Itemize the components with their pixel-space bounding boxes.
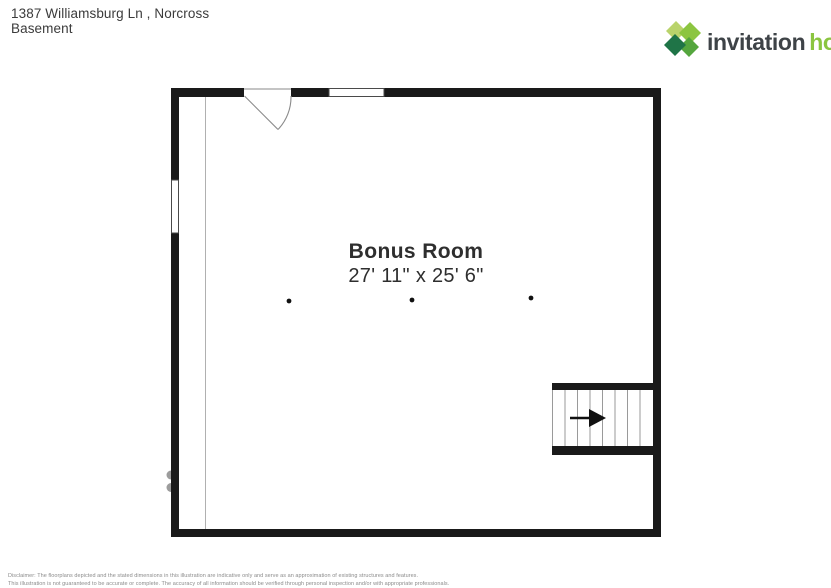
wall-left: [171, 88, 179, 537]
exterior-walls: [171, 88, 661, 537]
room-dimensions: 27' 11" x 25' 6": [171, 265, 661, 288]
door-leaf: [245, 96, 279, 130]
fixture-dot: [529, 296, 534, 301]
door-swing-arc: [278, 96, 291, 130]
staircase: [552, 383, 653, 455]
stairs-direction-right-arrow-icon: [570, 409, 606, 427]
disclaimer-line-1: Disclaimer: The floorplans depicted and …: [8, 572, 568, 580]
room-label: Bonus Room 27' 11" x 25' 6": [171, 240, 661, 288]
stair-wall-bottom: [552, 446, 653, 455]
room-name: Bonus Room: [171, 240, 661, 264]
window-left: [172, 180, 179, 233]
window-top: [329, 89, 384, 97]
ceiling-fixture-dots: [287, 296, 534, 304]
floorplan-page: 1387 Williamsburg Ln , Norcross Basement…: [0, 0, 831, 588]
fixture-dot: [410, 298, 415, 303]
wall-right: [653, 88, 661, 537]
fixture-dot: [287, 299, 292, 304]
disclaimer: Disclaimer: The floorplans depicted and …: [8, 572, 568, 588]
stair-wall-top: [552, 383, 653, 390]
disclaimer-line-2: This illustration is not guaranteed to b…: [8, 580, 568, 588]
door-opening: [244, 88, 291, 97]
floorplan-drawing: [0, 0, 831, 588]
door-swing-icon: [245, 96, 292, 130]
wall-bottom: [171, 529, 661, 537]
